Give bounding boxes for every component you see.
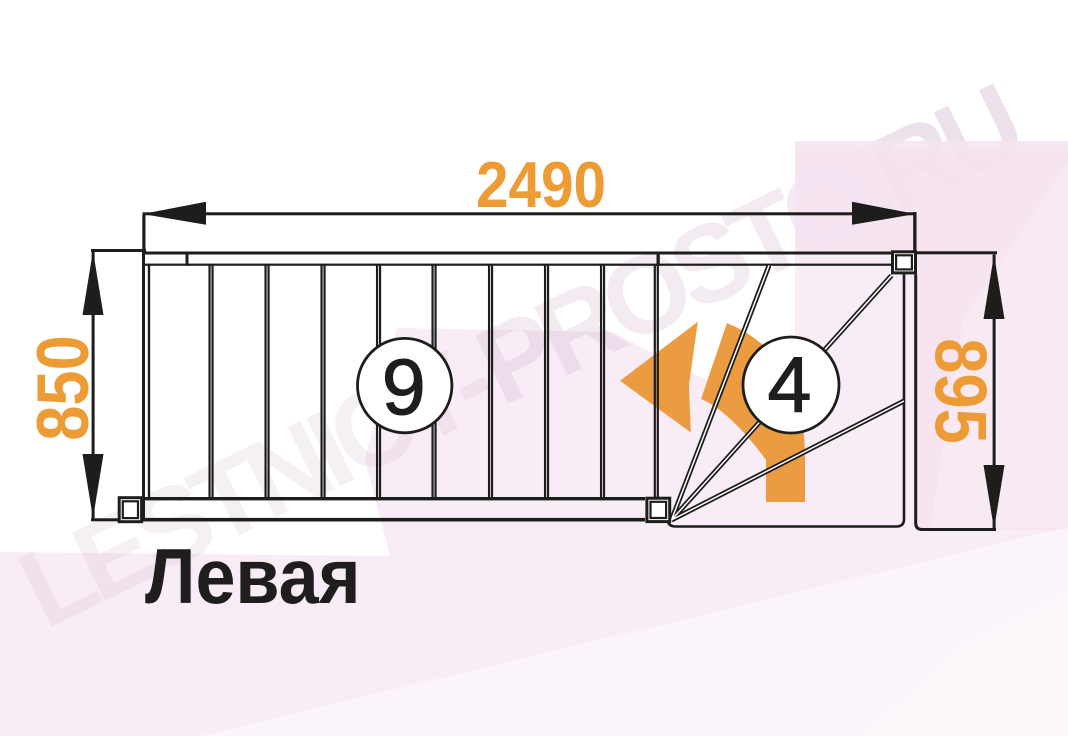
svg-text:850: 850 [23, 335, 104, 440]
svg-text:2490: 2490 [476, 149, 606, 222]
svg-text:895: 895 [919, 338, 1000, 443]
svg-text:Левая: Левая [145, 532, 361, 619]
svg-text:4: 4 [768, 340, 812, 429]
svg-text:9: 9 [382, 342, 426, 431]
